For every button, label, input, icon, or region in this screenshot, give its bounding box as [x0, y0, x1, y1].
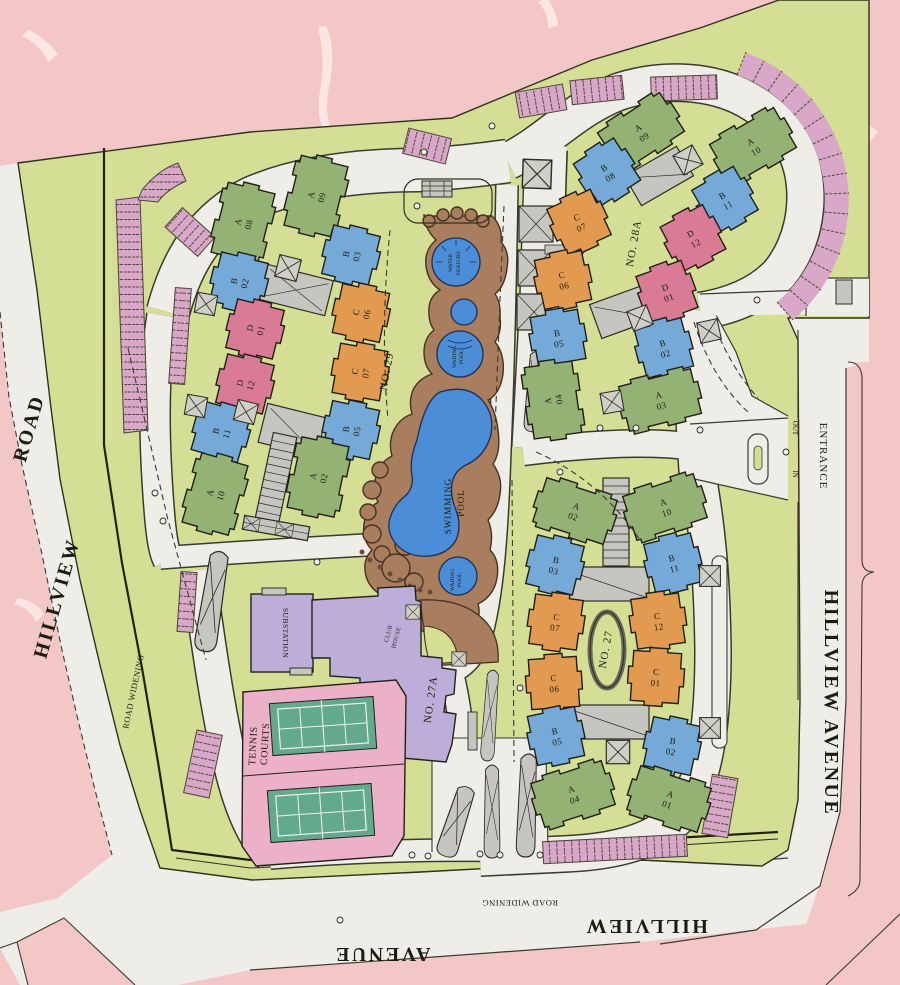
svg-text:ROAD WIDENING: ROAD WIDENING: [482, 898, 558, 908]
svg-text:POOL: POOL: [456, 489, 466, 517]
svg-text:WADING: WADING: [450, 569, 456, 591]
svg-text:HILLVIEW: HILLVIEW: [584, 915, 708, 937]
svg-text:POOL: POOL: [459, 349, 465, 364]
svg-text:HILLVIEW AVENUE: HILLVIEW AVENUE: [820, 590, 842, 817]
svg-text:IN: IN: [791, 470, 799, 477]
svg-text:SWIMMING: SWIMMING: [443, 478, 453, 535]
svg-text:WATER: WATER: [448, 254, 454, 273]
svg-text:POOL: POOL: [457, 572, 463, 587]
svg-text:FEATURE: FEATURE: [456, 250, 462, 275]
svg-text:ENTRANCE: ENTRANCE: [817, 423, 829, 490]
svg-text:WADING: WADING: [452, 346, 458, 368]
svg-text:AVENUE: AVENUE: [334, 943, 431, 965]
svg-text:COURTS: COURTS: [259, 722, 272, 765]
svg-text:OUT: OUT: [791, 421, 799, 436]
svg-text:SUBSTATION: SUBSTATION: [281, 608, 290, 658]
svg-text:TENNIS: TENNIS: [247, 726, 260, 766]
